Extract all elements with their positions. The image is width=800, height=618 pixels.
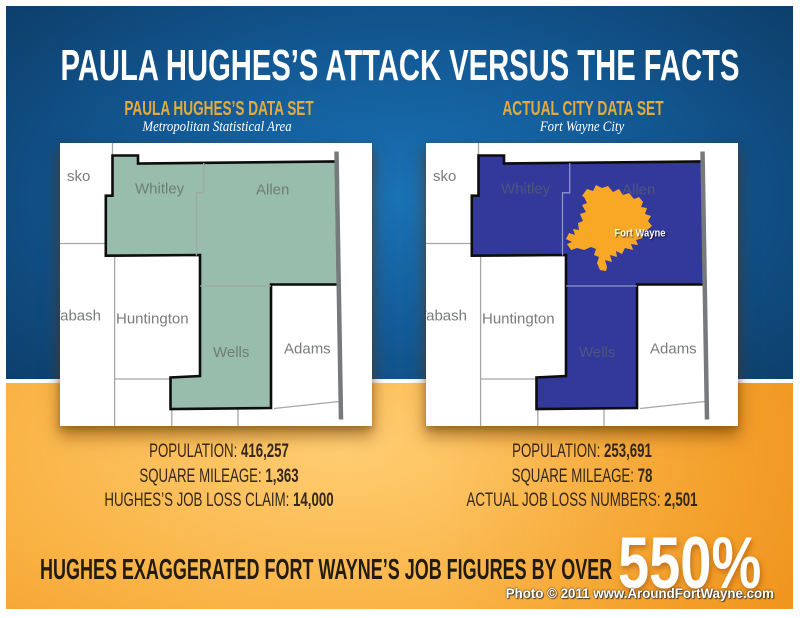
- svg-text:sko: sko: [433, 168, 456, 185]
- svg-text:Allen: Allen: [622, 182, 655, 199]
- svg-text:Wabash: Wabash: [426, 308, 467, 325]
- svg-text:Allen: Allen: [256, 182, 289, 199]
- svg-text:Wells: Wells: [213, 344, 249, 361]
- svg-text:Huntington: Huntington: [482, 311, 555, 328]
- svg-text:Fort Wayne: Fort Wayne: [614, 228, 665, 240]
- svg-text:Huntington: Huntington: [116, 311, 189, 328]
- svg-text:sko: sko: [67, 168, 90, 185]
- svg-text:Whitley: Whitley: [135, 181, 185, 198]
- svg-text:Wells: Wells: [579, 344, 615, 361]
- svg-text:Wabash: Wabash: [60, 308, 101, 325]
- svg-text:Whitley: Whitley: [501, 181, 551, 198]
- svg-text:Adams: Adams: [284, 341, 331, 358]
- svg-text:Adams: Adams: [650, 341, 697, 358]
